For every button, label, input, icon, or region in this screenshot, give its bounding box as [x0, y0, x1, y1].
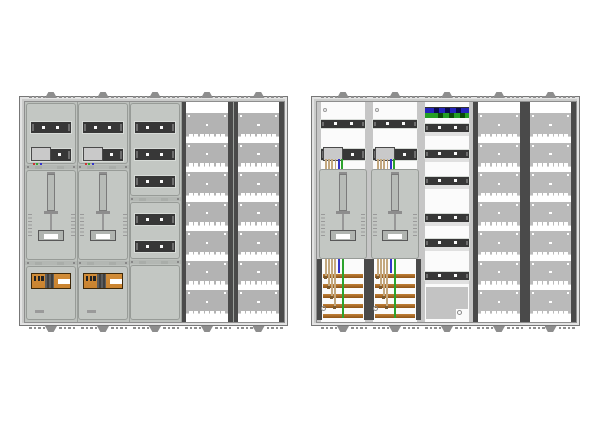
clip-tick: [267, 327, 270, 329]
separator-tooth: [543, 163, 547, 167]
separator-tooth: [549, 222, 553, 226]
separator-tooth: [481, 163, 485, 167]
plate-hole: [549, 153, 551, 155]
separator-tooth: [210, 222, 214, 226]
separator-tooth: [221, 163, 225, 167]
seam-tab: [109, 166, 116, 169]
clip-tick: [38, 327, 41, 329]
clip-tick: [29, 327, 32, 329]
separator-tooth: [200, 281, 204, 285]
row-knob: [351, 153, 354, 156]
clip-tick: [68, 96, 71, 98]
clip-tick: [95, 327, 98, 329]
plate-hole: [240, 115, 242, 117]
seam-screw: [125, 262, 127, 264]
plate-hole: [516, 204, 518, 206]
meter-terminal-window: [44, 234, 58, 239]
clip-tick: [387, 96, 390, 98]
row-knob: [160, 218, 163, 221]
separator-tooth: [543, 193, 547, 197]
meter-stem: [102, 214, 104, 230]
plate-hole: [224, 292, 226, 294]
row-knob: [438, 274, 441, 277]
plate-hole: [206, 301, 208, 303]
clip-tick: [360, 96, 363, 98]
top-mounting-clip: [529, 92, 573, 98]
separator-tooth: [497, 222, 501, 226]
busbar-rail: [369, 259, 374, 320]
meter-terminal-window: [388, 234, 402, 239]
sls-toggle: [34, 276, 36, 281]
pe-busbar: [425, 113, 469, 118]
separator-tooth: [246, 163, 250, 167]
grip-ridges: [123, 214, 127, 236]
separator-tooth: [502, 163, 506, 167]
clip-tick: [73, 327, 76, 329]
separator-tooth: [194, 163, 198, 167]
separator-tooth: [564, 252, 568, 256]
clip-tick: [90, 327, 93, 329]
sls-rating-window: [110, 279, 122, 284]
bottom-mounting-clip: [477, 326, 521, 332]
separator-tooth: [216, 163, 220, 167]
plate-hole: [480, 145, 482, 147]
separator-tooth: [205, 222, 209, 226]
sls-mid-section: [97, 274, 106, 288]
row-knob: [58, 153, 61, 156]
separator-tooth: [538, 222, 542, 226]
clip-tick: [382, 327, 385, 329]
device-row: [135, 241, 175, 252]
top-mounting-clip: [81, 92, 125, 98]
row-separator: [186, 313, 228, 320]
row-knob: [438, 152, 441, 155]
separator-tooth: [497, 163, 501, 167]
separator-tooth: [549, 252, 553, 256]
separator-tooth: [205, 163, 209, 167]
separator-tooth: [554, 222, 558, 226]
wire-lug: [330, 296, 333, 299]
clip-bump: [493, 92, 505, 98]
clip-tick: [38, 96, 41, 98]
plate-hole: [224, 174, 226, 176]
clip-tick: [464, 327, 467, 329]
top-mounting-clip: [237, 92, 281, 98]
bottom-mounting-clip: [29, 326, 73, 332]
clip-tick: [229, 327, 232, 329]
separator-tooth: [262, 252, 266, 256]
plate-hole: [480, 263, 482, 265]
separator-tooth: [538, 311, 542, 315]
row-endcap: [466, 216, 468, 220]
separator-tooth: [194, 311, 198, 315]
meter-terminal-window: [96, 234, 110, 239]
clip-tick: [469, 96, 472, 98]
clip-tick: [559, 96, 562, 98]
row-knob: [160, 153, 163, 156]
mounting-hook: [373, 306, 378, 311]
clip-tick: [246, 327, 249, 329]
clip-tick: [460, 96, 463, 98]
clip-tick: [403, 96, 406, 98]
plate-hole: [498, 212, 500, 214]
clip-tick: [563, 96, 566, 98]
row-separator: [238, 313, 279, 320]
plate-hole: [206, 153, 208, 155]
meter-terminal-bar: [330, 230, 356, 241]
din-carrier: [425, 158, 469, 162]
wire-lug: [376, 276, 379, 279]
sls-toggle: [38, 276, 40, 281]
device-row: [425, 124, 469, 132]
separator-tooth: [267, 281, 271, 285]
cover-seam: [129, 197, 181, 201]
clip-tick: [120, 96, 123, 98]
separator-tooth: [508, 134, 512, 138]
seam-tab: [57, 262, 64, 265]
clip-tick: [168, 96, 171, 98]
clip-bump: [45, 326, 57, 332]
clip-tick: [177, 96, 180, 98]
grip-ridges: [373, 214, 377, 236]
separator-tooth: [194, 222, 198, 226]
cover-seam: [77, 261, 129, 265]
plate-hole: [498, 242, 500, 244]
clip-tick: [412, 327, 415, 329]
clip-tick: [434, 327, 437, 329]
separator-tooth: [492, 311, 496, 315]
clip-tick: [521, 327, 524, 329]
separator-tooth: [205, 193, 209, 197]
mounting-hook: [321, 306, 326, 311]
clip-tick: [237, 96, 240, 98]
plate-hole: [480, 204, 482, 206]
separator-tooth: [189, 134, 193, 138]
sls-rating-window: [58, 279, 70, 284]
meter-terminal-bar: [90, 230, 116, 241]
separator-tooth: [502, 311, 506, 315]
separator-tooth: [189, 163, 193, 167]
row-endcap: [68, 151, 70, 159]
separator-tooth: [554, 163, 558, 167]
separator-tooth: [200, 193, 204, 197]
separator-tooth: [513, 163, 517, 167]
plate-hole: [188, 233, 190, 235]
separator-tooth: [543, 134, 547, 138]
row-endcap: [466, 179, 468, 183]
bottom-mounting-clip: [81, 326, 125, 332]
seam-tab: [139, 198, 146, 201]
clip-bump: [149, 326, 161, 332]
plate-hole: [188, 115, 190, 117]
column-perforated-field: [181, 102, 233, 322]
clip-tick: [439, 96, 442, 98]
plate-hole: [498, 183, 500, 185]
separator-tooth: [543, 252, 547, 256]
wire-tan-drop: [380, 259, 382, 288]
row-endcap: [426, 152, 428, 156]
plate-hole: [516, 292, 518, 294]
separator-tooth: [533, 252, 537, 256]
field-label: [35, 310, 44, 313]
seam-tab: [35, 262, 42, 265]
clip-tick: [172, 96, 175, 98]
separator-tooth: [549, 163, 553, 167]
separator-tooth: [559, 281, 563, 285]
row-endcap: [414, 151, 416, 158]
row-endcap: [68, 124, 70, 131]
clip-bump: [149, 92, 161, 98]
row-knob: [386, 122, 389, 125]
clip-bump: [253, 92, 265, 98]
clip-tick: [356, 327, 359, 329]
row-separator: [478, 313, 520, 320]
clip-tick: [482, 96, 485, 98]
seam-tab: [161, 261, 168, 264]
plate-hole: [498, 301, 500, 303]
separator-tooth: [251, 252, 255, 256]
clip-tick: [491, 327, 494, 329]
separator-tooth: [221, 311, 225, 315]
device-row: [135, 214, 175, 225]
clip-tick: [572, 96, 575, 98]
clip-bump: [45, 92, 57, 98]
cover-seam: [25, 165, 77, 169]
plate-hole: [567, 174, 569, 176]
device-row: [83, 122, 123, 133]
cabinet-open-view: [311, 96, 580, 326]
separator-tooth: [492, 163, 496, 167]
row-knob: [42, 126, 45, 129]
mounting-hook: [457, 310, 462, 315]
top-mounting-clip: [133, 92, 177, 98]
clip-tick: [469, 327, 472, 329]
separator-tooth: [497, 281, 501, 285]
separator-tooth: [267, 193, 271, 197]
clip-tick: [59, 96, 62, 98]
plate-hole: [240, 263, 242, 265]
clip-tick: [280, 327, 283, 329]
seam-tab: [87, 262, 94, 265]
row-endcap: [414, 122, 416, 126]
column-gap-line: [129, 102, 130, 322]
bottom-mounting-clip: [321, 326, 365, 332]
plate-hole: [275, 115, 277, 117]
cabinet-covered-view: [19, 96, 288, 326]
clip-tick: [64, 96, 67, 98]
separator-tooth: [241, 311, 245, 315]
top-mounting-clip: [425, 92, 469, 98]
clip-bump: [545, 92, 557, 98]
sls-toggle: [86, 276, 88, 281]
clip-tick: [486, 96, 489, 98]
din-carrier: [425, 222, 469, 226]
clip-tick: [116, 327, 119, 329]
separator-tooth: [194, 134, 198, 138]
wire-green-drop: [394, 259, 396, 318]
clip-bump: [389, 326, 401, 332]
clip-tick: [276, 327, 279, 329]
clip-tick: [408, 327, 411, 329]
plate-hole: [549, 124, 551, 126]
separator-tooth: [559, 134, 563, 138]
separator-tooth: [205, 311, 209, 315]
separator-tooth: [267, 134, 271, 138]
clip-tick: [199, 327, 202, 329]
clip-bump: [201, 326, 213, 332]
separator-tooth: [210, 134, 214, 138]
clip-tick: [482, 327, 485, 329]
row-knob: [454, 274, 457, 277]
wire-lug: [379, 286, 382, 289]
separator-tooth: [246, 134, 250, 138]
clip-tick: [172, 327, 175, 329]
clip-tick: [29, 96, 32, 98]
plate-hole: [532, 292, 534, 294]
row-knob: [108, 126, 111, 129]
wire-tan-drop: [386, 259, 388, 308]
clip-tick: [572, 327, 575, 329]
plate-hole: [224, 233, 226, 235]
row-endcap: [136, 216, 138, 223]
clip-tick: [568, 96, 571, 98]
separator-tooth: [497, 252, 501, 256]
plate-hole: [257, 153, 259, 155]
meter-terminal-window: [336, 234, 350, 239]
plate-hole: [224, 204, 226, 206]
column-gap-line: [233, 102, 234, 322]
separator-tooth: [246, 252, 250, 256]
row-knob: [110, 153, 113, 156]
clip-bump: [337, 92, 349, 98]
separator-tooth: [538, 281, 542, 285]
clip-tick: [168, 327, 171, 329]
cover-seam: [25, 261, 77, 265]
meter-mounting-rail: [339, 174, 347, 211]
device-row: [31, 122, 71, 133]
plate-hole: [567, 204, 569, 206]
row-endcap: [426, 216, 428, 220]
separator-tooth: [564, 311, 568, 315]
plate-hole: [532, 233, 534, 235]
separator-tooth: [257, 222, 261, 226]
clip-tick: [455, 327, 458, 329]
clip-tick: [533, 327, 536, 329]
blank-cover-panel: [130, 265, 180, 320]
clip-tick: [185, 96, 188, 98]
row-knob: [438, 179, 441, 182]
clip-tick: [133, 96, 136, 98]
sls-toggle: [41, 276, 43, 281]
separator-tooth: [502, 252, 506, 256]
plate-hole: [275, 204, 277, 206]
separator-tooth: [210, 163, 214, 167]
separator-tooth: [508, 222, 512, 226]
plate-hole: [567, 263, 569, 265]
clip-tick: [280, 96, 283, 98]
row-knob: [146, 245, 149, 248]
separator-tooth: [502, 193, 506, 197]
wire-tan-drop: [328, 259, 330, 288]
separator-tooth: [533, 163, 537, 167]
separator-tooth: [513, 311, 517, 315]
row-knob: [160, 180, 163, 183]
terminal-block: [31, 147, 51, 161]
clip-tick: [412, 96, 415, 98]
row-endcap: [466, 241, 468, 245]
meter-stem: [394, 214, 396, 230]
separator-tooth: [246, 193, 250, 197]
plate-hole: [206, 124, 208, 126]
clip-tick: [365, 96, 368, 98]
din-carrier: [425, 185, 469, 189]
bottom-mounting-clip: [133, 326, 177, 332]
plate-hole: [549, 271, 551, 273]
separator-tooth: [251, 193, 255, 197]
separator-tooth: [251, 311, 255, 315]
bottom-mounting-clip: [237, 326, 281, 332]
separator-tooth: [549, 311, 553, 315]
clip-tick: [430, 327, 433, 329]
clip-tick: [163, 327, 166, 329]
separator-tooth: [267, 252, 271, 256]
separator-tooth: [513, 134, 517, 138]
separator-tooth: [246, 222, 250, 226]
clip-tick: [86, 96, 89, 98]
clip-tick: [507, 96, 510, 98]
clip-tick: [95, 96, 98, 98]
clip-tick: [190, 96, 193, 98]
separator-tooth: [216, 281, 220, 285]
clip-bump: [545, 326, 557, 332]
row-endcap: [426, 274, 428, 278]
column-meter-field-open: [317, 102, 369, 322]
row-knob: [350, 122, 353, 125]
plate-hole: [188, 263, 190, 265]
sls-toggle: [93, 276, 95, 281]
clip-tick: [125, 327, 128, 329]
clip-tick: [326, 327, 329, 329]
separator-tooth: [538, 193, 542, 197]
separator-tooth: [194, 252, 198, 256]
clip-bump: [97, 92, 109, 98]
row-knob: [146, 126, 149, 129]
plate-hole: [532, 204, 534, 206]
separator-tooth: [200, 163, 204, 167]
plate-hole: [567, 292, 569, 294]
separator-tooth: [200, 252, 204, 256]
separator-tooth: [502, 134, 506, 138]
busbar-clamp: [460, 113, 465, 118]
clip-tick: [542, 327, 545, 329]
clip-tick: [142, 96, 145, 98]
plate-hole: [188, 145, 190, 147]
plate-hole: [275, 174, 277, 176]
clip-tick: [430, 96, 433, 98]
clip-tick: [241, 327, 244, 329]
row-knob: [438, 216, 441, 219]
separator-tooth: [267, 222, 271, 226]
row-endcap: [466, 126, 468, 130]
plate-hole: [206, 212, 208, 214]
clip-tick: [147, 96, 150, 98]
clip-tick: [64, 327, 67, 329]
separator-tooth: [554, 311, 558, 315]
device-row: [135, 176, 175, 187]
separator-tooth: [189, 252, 193, 256]
separator-tooth: [502, 281, 506, 285]
row-knob: [334, 122, 337, 125]
